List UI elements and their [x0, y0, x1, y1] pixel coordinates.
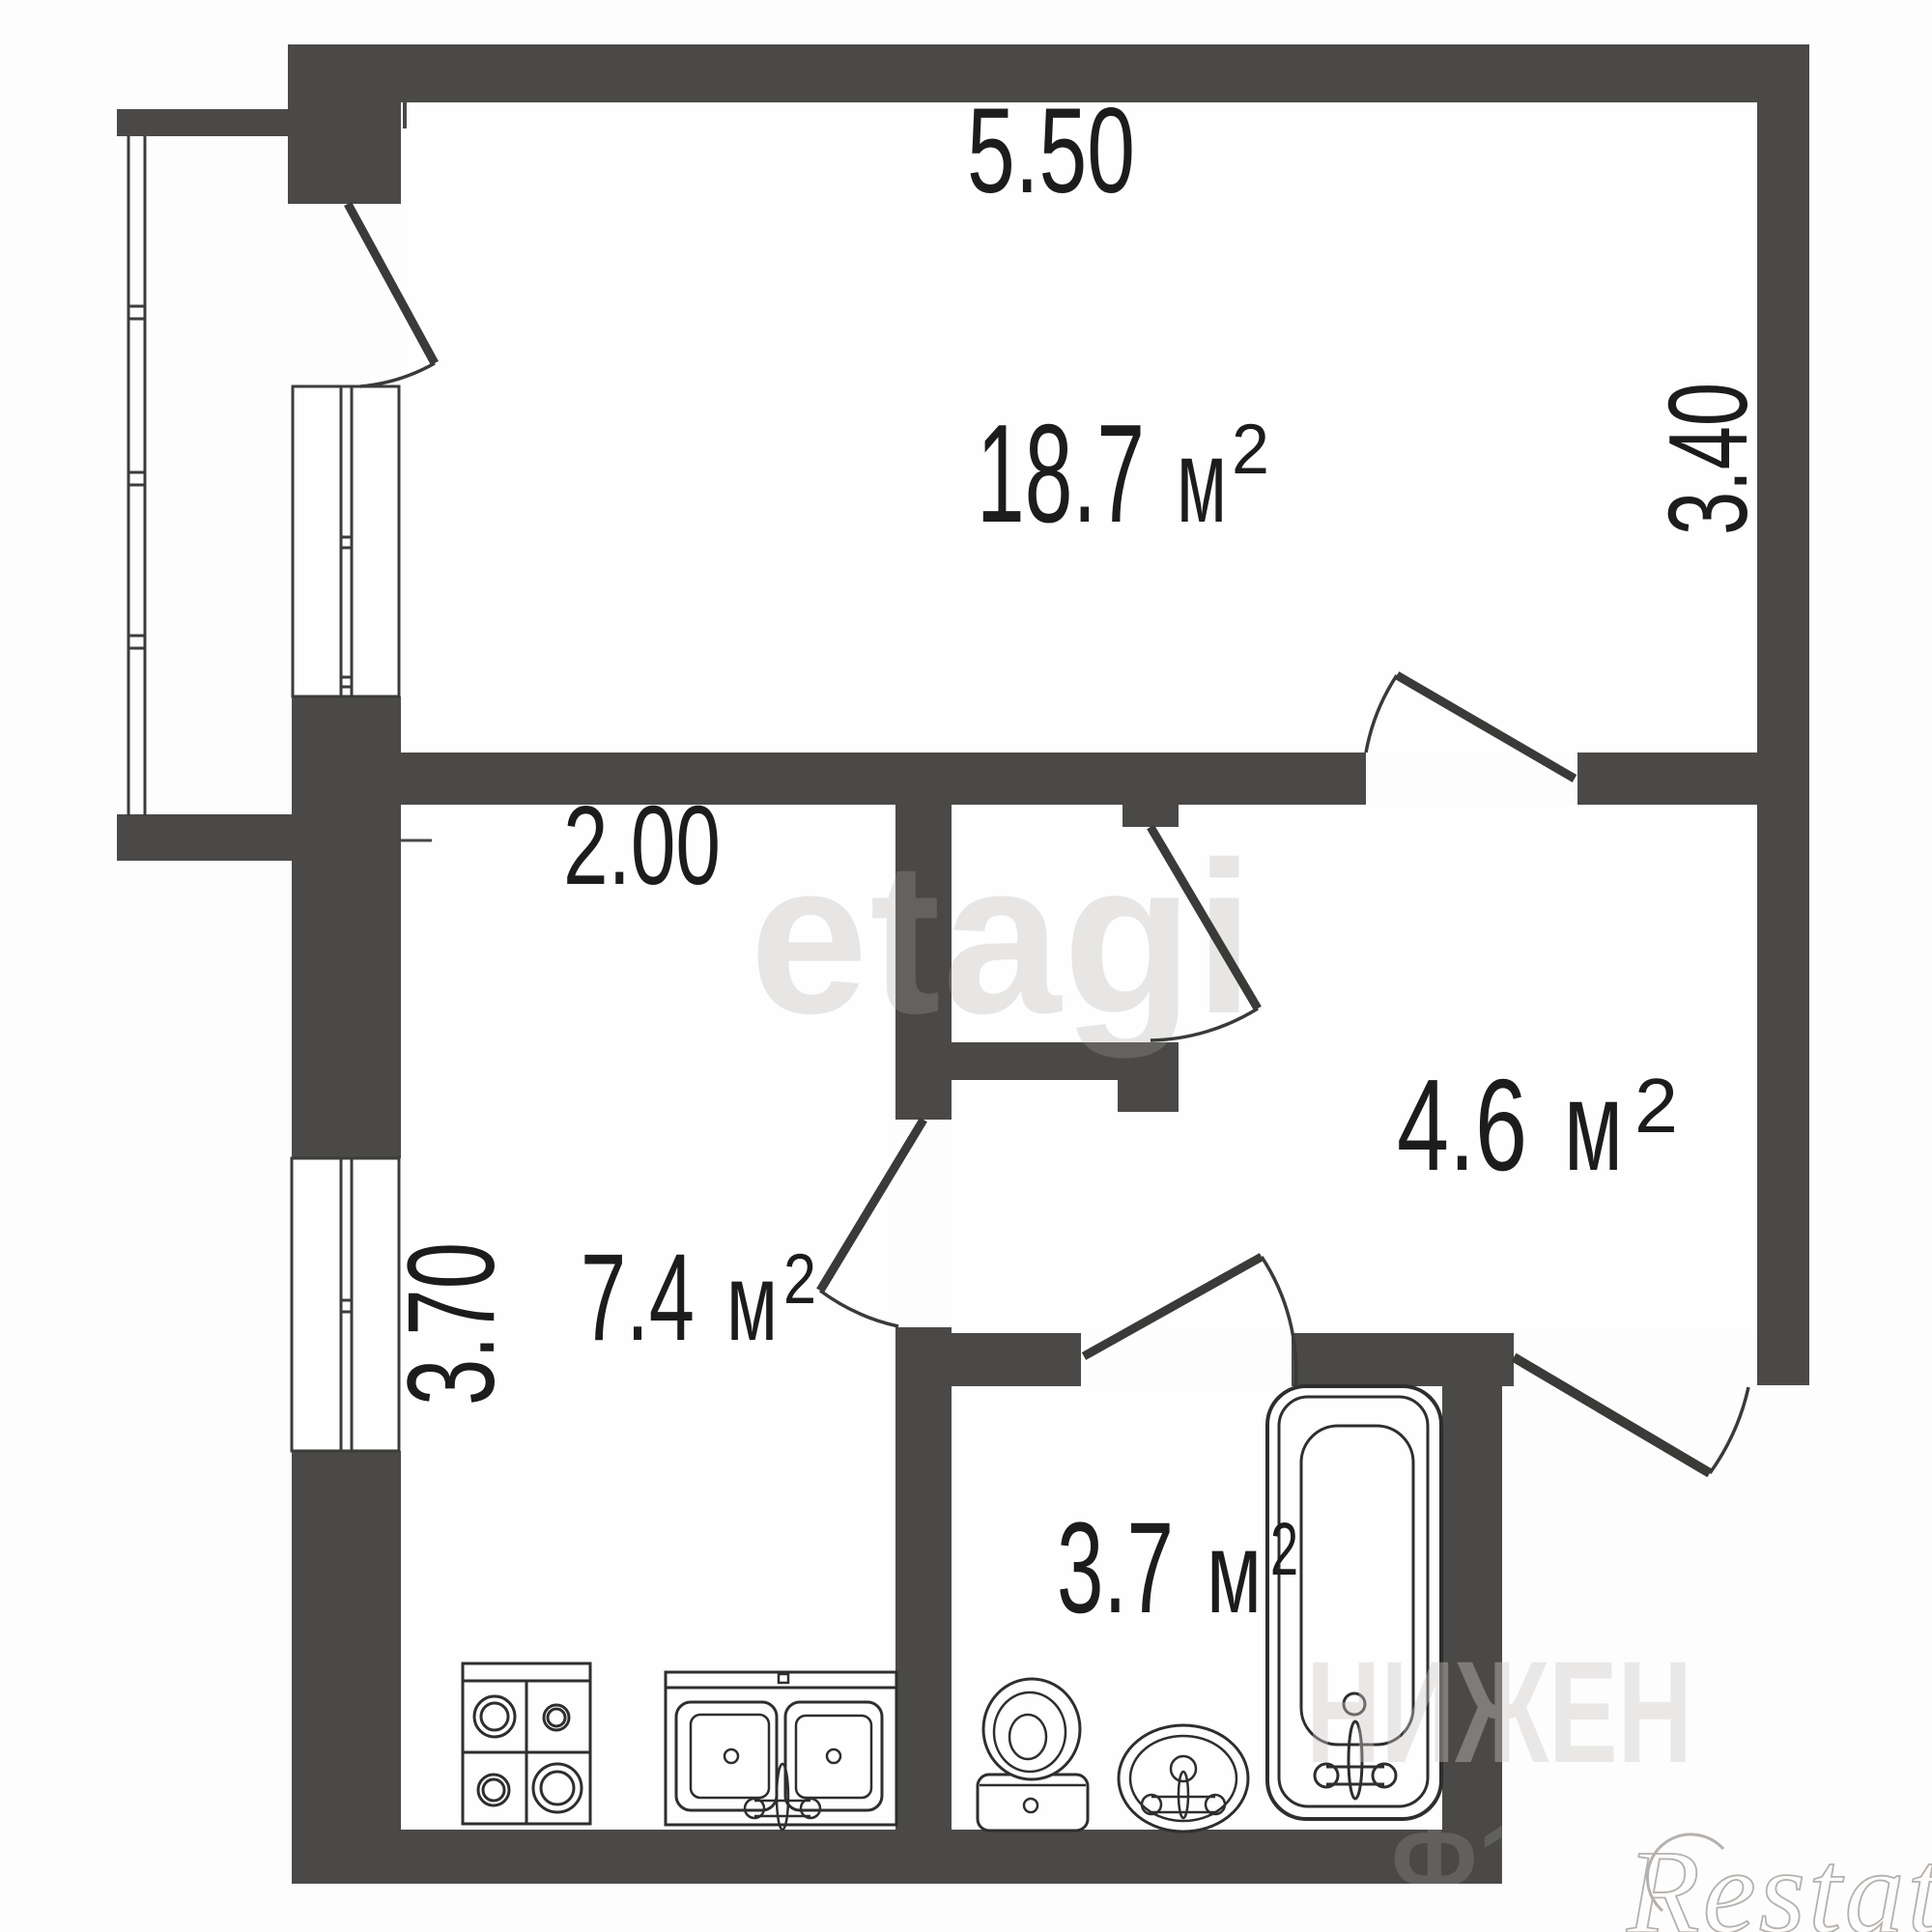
svg-text:4.6: 4.6 — [1397, 1052, 1527, 1198]
svg-text:5.50: 5.50 — [967, 84, 1135, 218]
svg-text:м: м — [1564, 1055, 1623, 1198]
svg-text:3.70: 3.70 — [383, 1242, 521, 1406]
svg-text:3.7: 3.7 — [1057, 1496, 1174, 1640]
svg-text:м: м — [726, 1241, 778, 1364]
svg-text:Ф1: Ф1 — [1391, 1804, 1534, 1918]
svg-text:2: 2 — [1634, 1063, 1678, 1149]
svg-text:2: 2 — [1232, 411, 1269, 489]
svg-text:3.40: 3.40 — [1645, 383, 1771, 535]
svg-text:НИЖЕН: НИЖЕН — [1306, 1631, 1692, 1793]
svg-text:18.7: 18.7 — [977, 395, 1145, 552]
svg-text:м: м — [1207, 1508, 1262, 1637]
svg-text:7.4: 7.4 — [581, 1229, 695, 1367]
svg-text:Restate: Restate — [1626, 1826, 1932, 1932]
svg-text:etagi: etagi — [750, 817, 1256, 1059]
svg-text:2: 2 — [783, 1240, 816, 1319]
svg-text:2.00: 2.00 — [563, 782, 721, 908]
svg-text:2: 2 — [1270, 1508, 1298, 1591]
svg-text:м: м — [1177, 415, 1227, 548]
